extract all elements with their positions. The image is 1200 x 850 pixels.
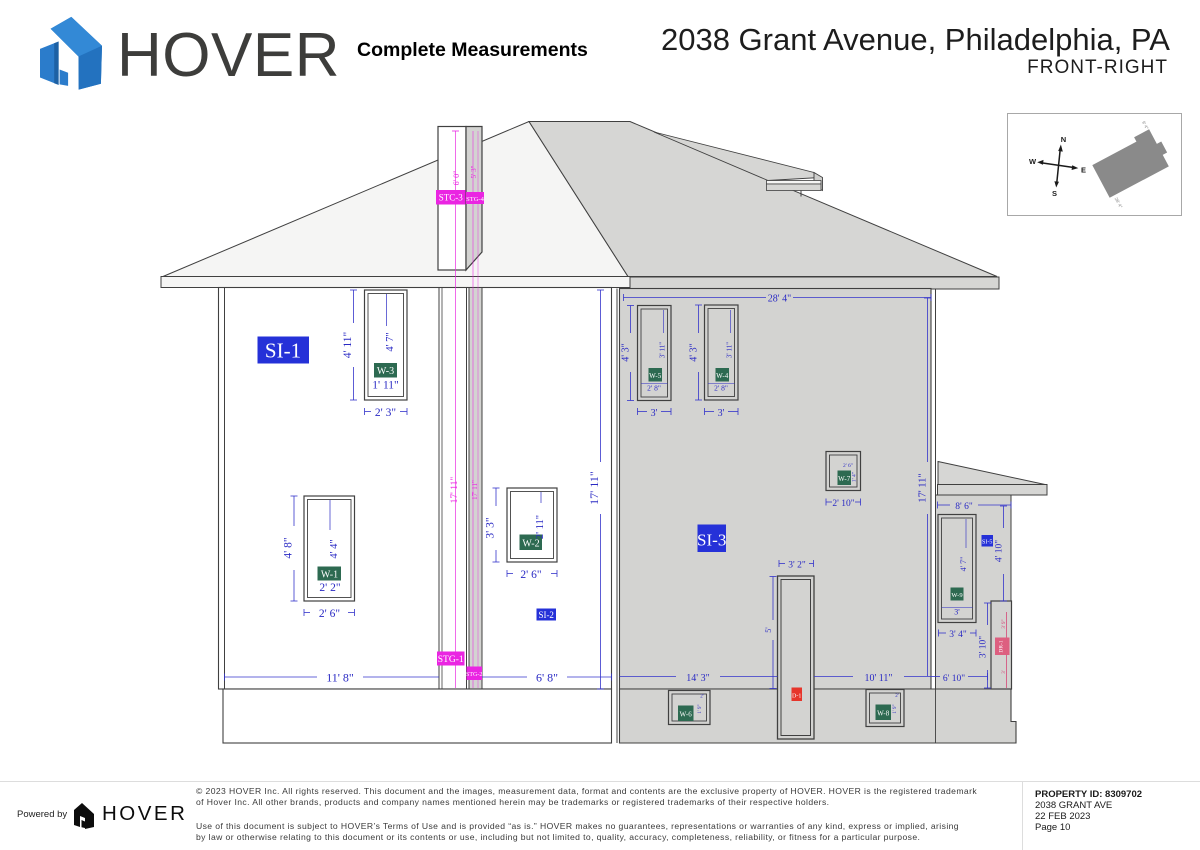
svg-text:SI-5: SI-5 xyxy=(982,540,992,546)
svg-text:4' 7": 4' 7" xyxy=(385,332,396,351)
svg-text:4' 7": 4' 7" xyxy=(959,557,968,572)
svg-text:17' 11": 17' 11" xyxy=(918,473,929,502)
svg-text:DR-1: DR-1 xyxy=(999,640,1005,652)
svg-text:W-5: W-5 xyxy=(649,372,662,380)
svg-text:5': 5' xyxy=(764,627,773,633)
svg-text:6' 10": 6' 10" xyxy=(943,674,965,684)
svg-text:3' 2": 3' 2" xyxy=(788,561,806,571)
svg-text:S: S xyxy=(1052,189,1057,198)
svg-text:10' 11": 10' 11" xyxy=(864,673,892,684)
svg-text:W: W xyxy=(1029,157,1037,166)
svg-text:2' 11": 2' 11" xyxy=(535,515,546,539)
svg-text:2' 8": 2' 8" xyxy=(647,384,661,393)
svg-text:W-9: W-9 xyxy=(951,592,962,599)
svg-text:4' 3": 4' 3" xyxy=(621,343,632,361)
svg-text:STG-4: STG-4 xyxy=(466,196,484,203)
svg-text:6' 8": 6' 8" xyxy=(536,671,558,685)
svg-text:8' 6": 8' 6" xyxy=(955,502,973,512)
svg-text:2' 2": 2' 2" xyxy=(319,582,340,594)
svg-text:4' 8": 4' 8" xyxy=(283,537,295,558)
svg-text:4' 3": 4' 3" xyxy=(689,343,700,361)
svg-text:4' 11": 4' 11" xyxy=(342,332,354,358)
svg-text:3': 3' xyxy=(651,408,658,419)
svg-text:3': 3' xyxy=(1002,670,1007,674)
svg-text:1' 9": 1' 9" xyxy=(893,704,898,713)
svg-text:STG-2: STG-2 xyxy=(466,672,482,678)
svg-text:17' 11": 17' 11" xyxy=(450,477,460,504)
svg-text:2' 10": 2' 10" xyxy=(832,499,854,509)
svg-text:W-3: W-3 xyxy=(377,366,394,377)
svg-text:2' 6": 2' 6" xyxy=(319,608,340,620)
svg-text:11' 8": 11' 8" xyxy=(326,671,354,685)
svg-text:SI-3: SI-3 xyxy=(697,531,726,550)
svg-text:14' 3": 14' 3" xyxy=(686,673,709,684)
svg-text:W-4: W-4 xyxy=(716,372,729,380)
svg-text:3' 9": 3' 9" xyxy=(1002,619,1007,628)
svg-text:4' 4": 4' 4" xyxy=(329,539,340,558)
svg-text:1' 9": 1' 9" xyxy=(698,704,703,713)
svg-text:3': 3' xyxy=(954,608,960,617)
svg-text:W-2: W-2 xyxy=(522,539,539,550)
svg-text:2': 2' xyxy=(895,694,899,699)
svg-text:3' 10": 3' 10" xyxy=(979,636,989,658)
svg-text:3' 11": 3' 11" xyxy=(659,342,667,358)
svg-text:2' 8": 2' 8" xyxy=(714,384,728,393)
svg-text:5' 3": 5' 3" xyxy=(470,165,478,178)
svg-text:SI-1: SI-1 xyxy=(265,339,301,363)
svg-text:W-1: W-1 xyxy=(321,570,338,581)
svg-text:1' 4": 1' 4" xyxy=(852,472,858,482)
svg-text:3': 3' xyxy=(718,408,725,419)
svg-text:17' 11": 17' 11" xyxy=(587,471,601,505)
svg-text:STC-3: STC-3 xyxy=(439,193,464,203)
svg-text:W-6: W-6 xyxy=(680,711,693,719)
svg-text:N: N xyxy=(1061,135,1066,144)
svg-text:3' 3": 3' 3" xyxy=(485,517,497,538)
svg-text:W-7: W-7 xyxy=(838,475,851,483)
svg-text:STG-1: STG-1 xyxy=(438,655,464,665)
svg-text:1' 11": 1' 11" xyxy=(372,380,398,392)
svg-text:4' 10": 4' 10" xyxy=(995,540,1005,562)
svg-text:W-8: W-8 xyxy=(877,710,890,718)
svg-text:3' 4": 3' 4" xyxy=(949,630,967,640)
svg-text:2' 6": 2' 6" xyxy=(843,463,853,469)
svg-text:3' 11": 3' 11" xyxy=(726,342,734,358)
svg-text:17' 11": 17' 11" xyxy=(471,480,479,500)
svg-text:28' 4": 28' 4" xyxy=(768,294,791,305)
svg-text:2' 6": 2' 6" xyxy=(520,569,541,581)
svg-text:D-1: D-1 xyxy=(792,694,801,700)
svg-text:E: E xyxy=(1081,166,1086,175)
svg-text:SI-2: SI-2 xyxy=(538,610,554,620)
svg-text:2': 2' xyxy=(700,695,704,700)
svg-text:2' 3": 2' 3" xyxy=(375,407,396,419)
svg-text:6' 0": 6' 0" xyxy=(452,171,461,186)
